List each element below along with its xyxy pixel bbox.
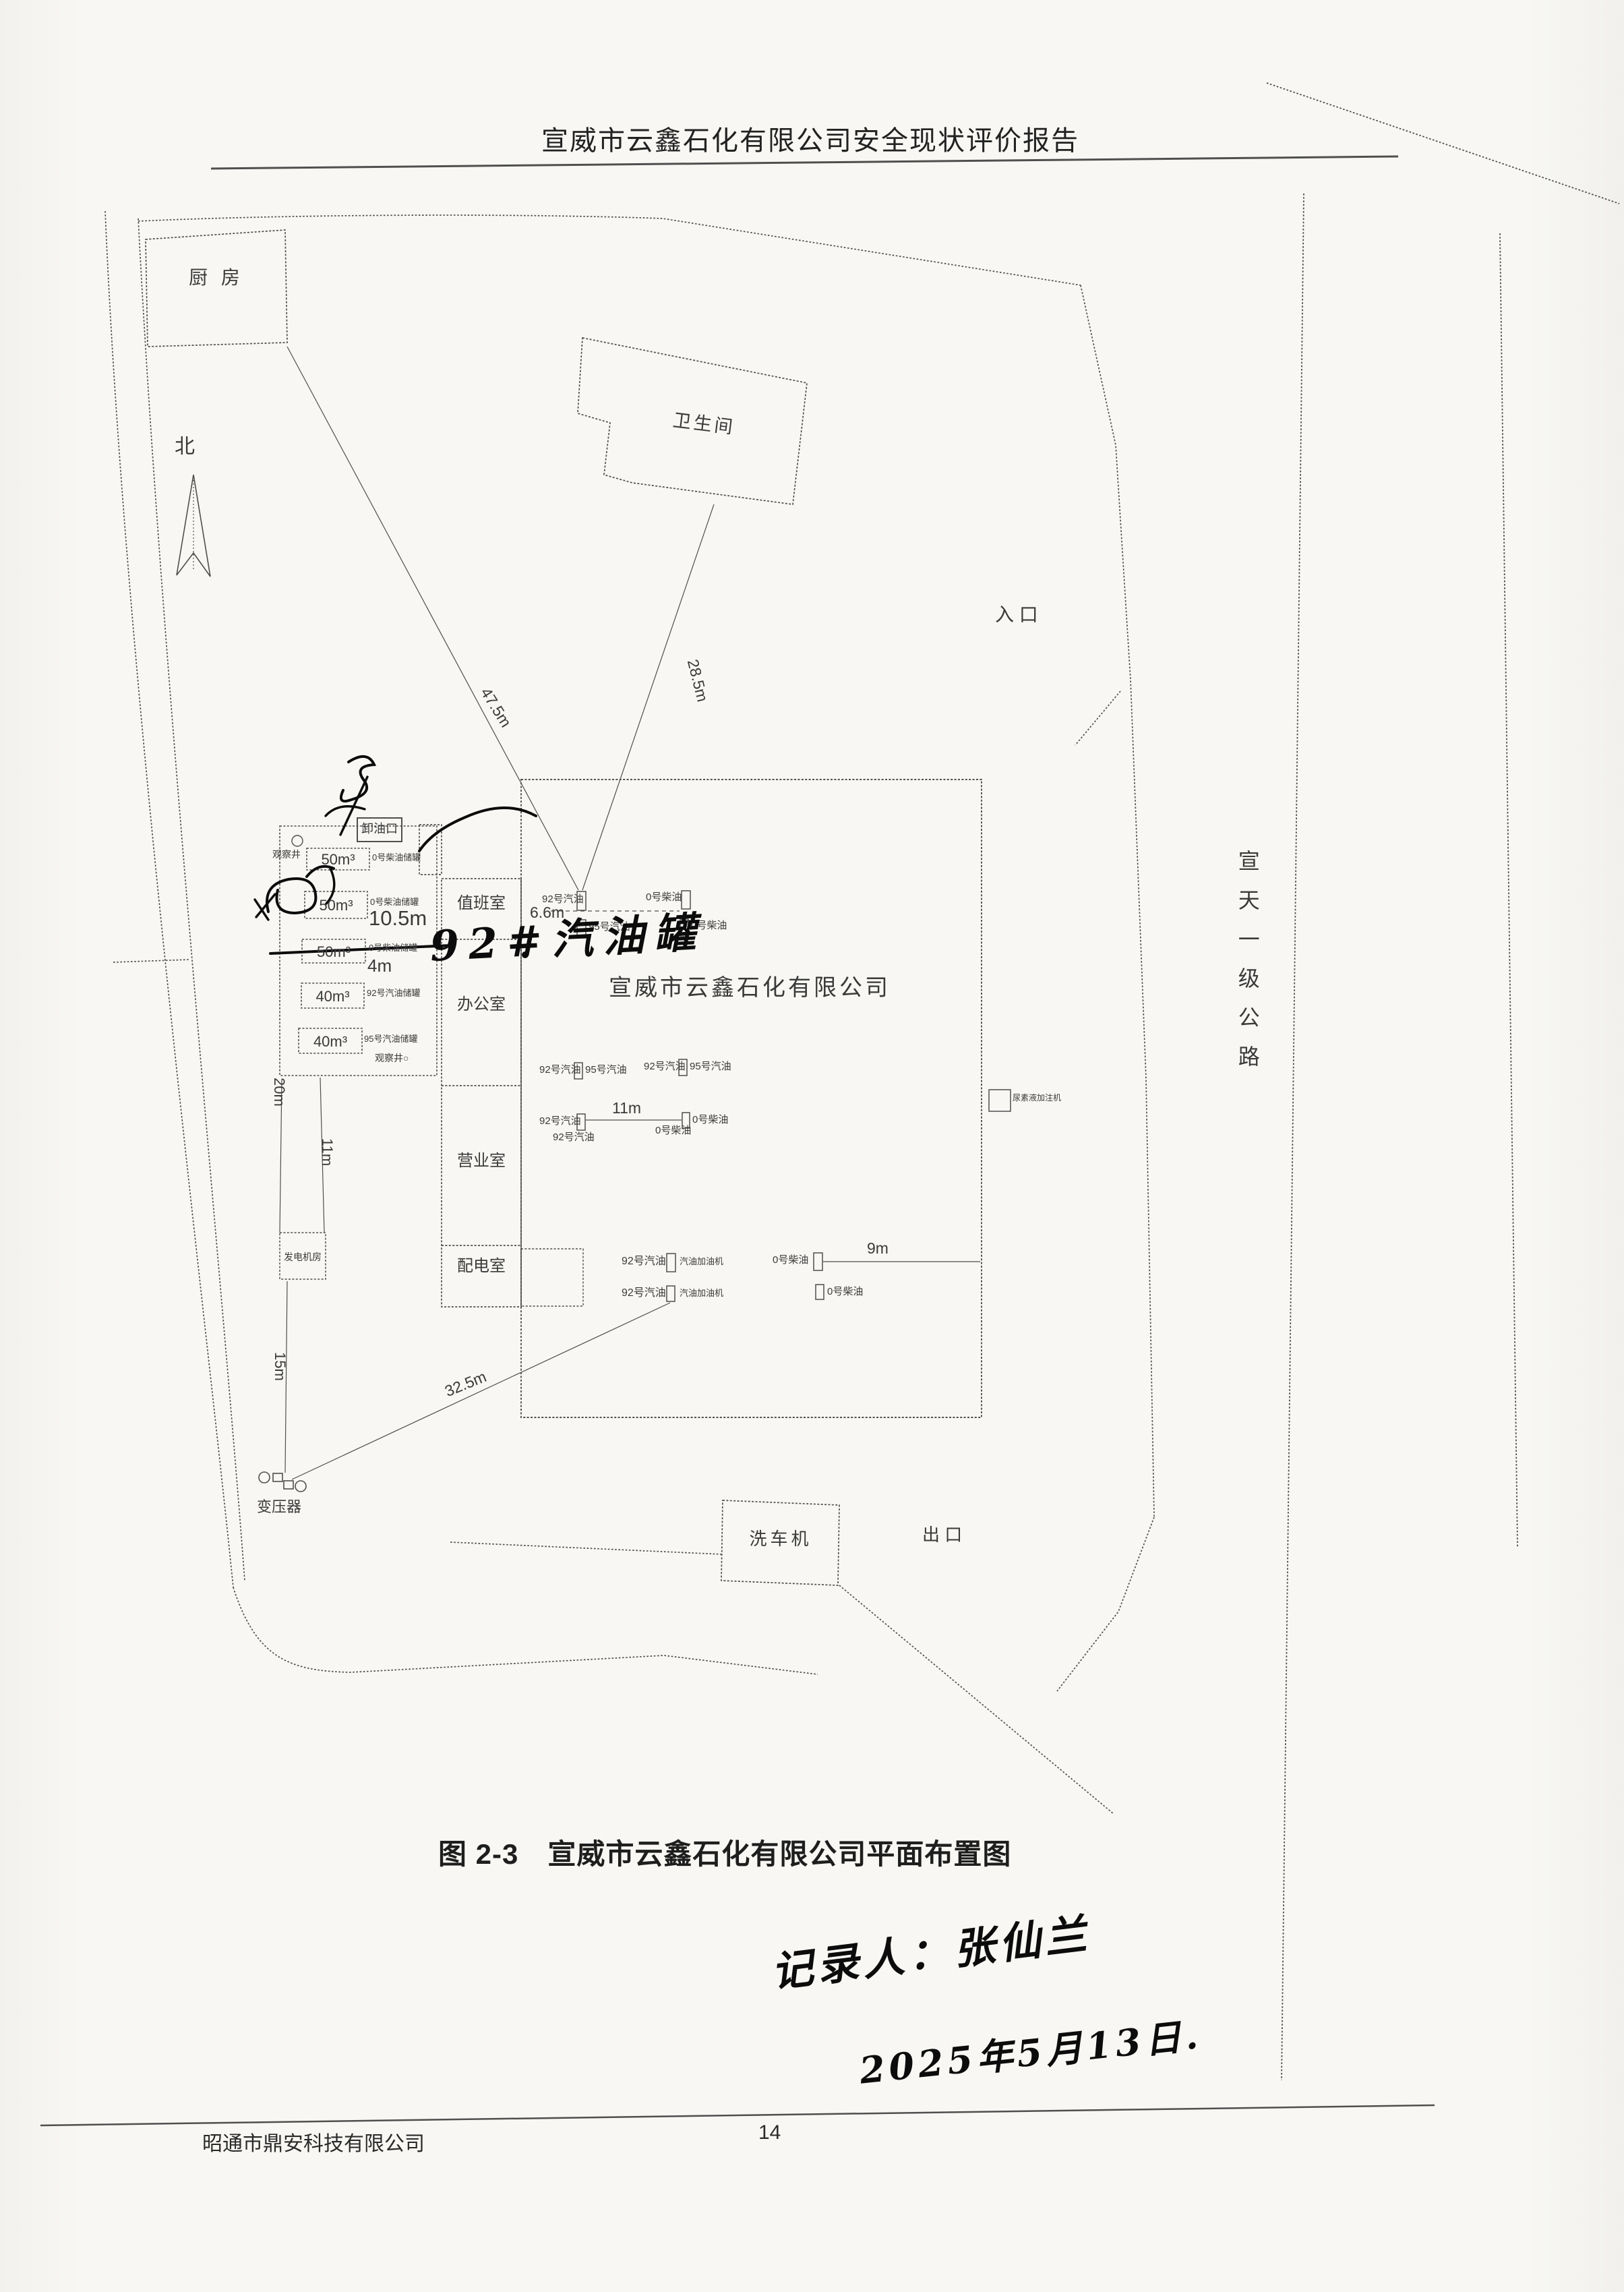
dispenser-92: 92号汽油 (542, 893, 584, 905)
dim-4m: 4m (367, 956, 392, 976)
page-number: 14 (758, 2121, 781, 2145)
dispenser-92: 92号汽油 (622, 1256, 666, 1268)
north-label: 北 (175, 436, 195, 459)
dim-11m: 11m (612, 1099, 641, 1117)
footer-company: 昭通市鼎安科技有限公司 (202, 2133, 425, 2156)
tank-product: 0号柴油储罐 (372, 853, 421, 863)
dispenser-92: 92号汽油 (539, 1115, 581, 1127)
road-name: 宣天一级公路 (1235, 850, 1260, 1084)
business-room-label: 营业室 (442, 1152, 521, 1171)
entrance-label: 入 口 (995, 604, 1038, 626)
urea-machine-label: 尿素液加注机 (1013, 1094, 1061, 1103)
power-room-label: 配电室 (442, 1257, 521, 1276)
dispenser-0: 0号柴油 (827, 1286, 863, 1297)
dispenser-0: 0号柴油 (773, 1254, 808, 1266)
tank-volume: 50m³ (302, 943, 365, 960)
tank-volume: 40m³ (301, 988, 364, 1005)
dispenser-0: 0号柴油 (655, 1125, 691, 1136)
car-washer-label: 洗车机 (723, 1529, 839, 1550)
tank-volume: 40m³ (299, 1033, 362, 1050)
footer-rule (40, 2105, 1435, 2125)
transformer-label: 变压器 (257, 1498, 301, 1515)
dim-15m: 15m (272, 1352, 289, 1381)
dispenser-0: 0号柴油 (646, 891, 682, 903)
office-label: 办公室 (442, 995, 521, 1014)
dispenser-0: 0号柴油 (692, 1114, 728, 1125)
duty-room-label: 值班室 (442, 894, 521, 913)
site-boundary (105, 211, 1154, 1814)
observation-well-2-label: 观察井○ (375, 1053, 409, 1063)
tank-product: 0号柴油储罐 (369, 943, 417, 953)
scanned-report-page: 宣威市云鑫石化有限公司安全现状评价报告 图 2-3 宣威市云鑫石化有限公司平面布… (0, 0, 1624, 2292)
pump-label: 汽油加油机 (680, 1289, 723, 1299)
tank-product: 92号汽油储罐 (367, 989, 420, 999)
kitchen-label: 厨 房 (146, 267, 287, 289)
tank-volume: 50m³ (307, 851, 369, 868)
exit-label: 出 口 (922, 1525, 962, 1546)
canopy-company-label: 宣威市云鑫石化有限公司 (609, 975, 891, 1001)
transformer-icon (259, 1472, 306, 1492)
header-title: 宣威市云鑫石化有限公司安全现状评价报告 (539, 125, 1081, 156)
dim-10-5m: 10.5m (369, 906, 427, 931)
dispenser-92: 92号汽油 (539, 1064, 581, 1076)
pump-label: 汽油加油机 (680, 1257, 723, 1267)
header-rule (211, 156, 1398, 169)
dim-9m: 9m (867, 1239, 889, 1257)
canopy-outline (521, 780, 982, 1417)
road-edges (1267, 83, 1619, 2080)
north-arrow-icon (177, 475, 210, 577)
dispenser-92: 92号汽油 (644, 1061, 686, 1072)
dispenser-95: 95号汽油 (585, 1064, 627, 1076)
figure-caption: 图 2-3 宣威市云鑫石化有限公司平面布置图 (438, 1838, 1008, 1871)
dim-20m: 20m (271, 1078, 288, 1107)
dim-11m-b: 11m (319, 1138, 336, 1166)
unloading-port-label: 卸油口 (359, 822, 400, 836)
tank-volume: 50m³ (305, 897, 367, 914)
dispenser-92: 92号汽油 (553, 1132, 595, 1143)
dispenser-95: 95号汽油 (690, 1061, 731, 1072)
tank-product: 95号汽油储罐 (364, 1034, 417, 1045)
generator-room-label: 发电机房 (280, 1252, 326, 1262)
dispenser-92: 92号汽油 (622, 1287, 666, 1299)
observation-well-label: 观察井 (272, 849, 301, 860)
